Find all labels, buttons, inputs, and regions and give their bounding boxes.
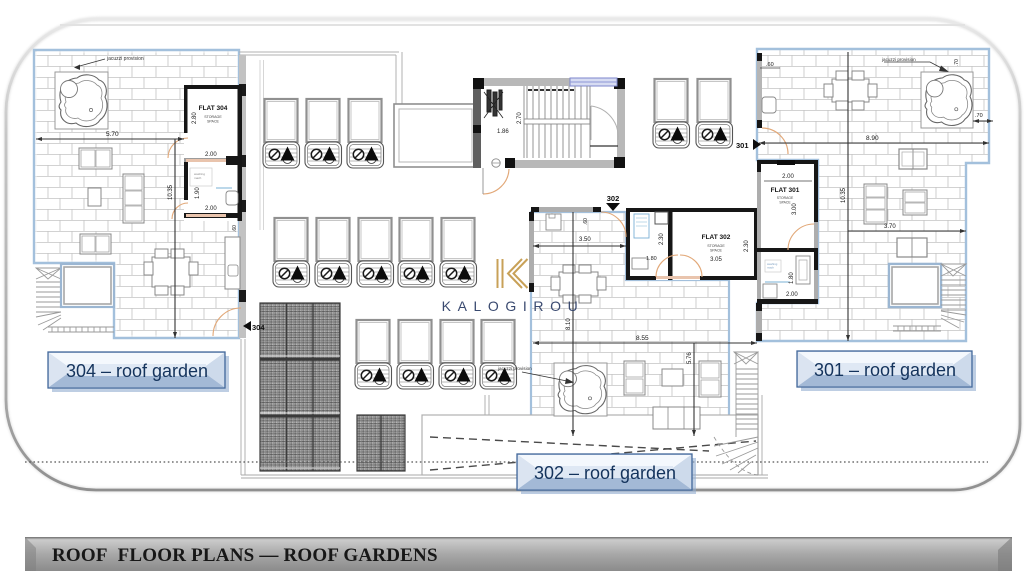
svg-text:2.00: 2.00 xyxy=(786,292,798,298)
svg-text:1.90: 1.90 xyxy=(195,187,201,199)
svg-text:8.90: 8.90 xyxy=(866,135,879,142)
svg-text:1.80: 1.80 xyxy=(646,256,657,262)
svg-text:10.35: 10.35 xyxy=(168,184,174,200)
svg-text:1.80: 1.80 xyxy=(789,272,795,284)
svg-text:jacuzzi provision: jacuzzi provision xyxy=(497,366,532,371)
svg-text:FLAT 304: FLAT 304 xyxy=(199,105,228,112)
svg-text:5.76: 5.76 xyxy=(687,352,693,364)
svg-text:KALOGIROU: KALOGIROU xyxy=(442,298,585,314)
svg-text:STORAGE: STORAGE xyxy=(204,115,222,119)
svg-text:3.70: 3.70 xyxy=(884,224,896,230)
svg-text:SPACE: SPACE xyxy=(207,120,220,124)
svg-text:jacuzzi provision: jacuzzi provision xyxy=(881,57,916,62)
svg-text:2.00: 2.00 xyxy=(782,174,794,180)
svg-text:.60: .60 xyxy=(583,218,589,225)
svg-text:SPACE: SPACE xyxy=(710,249,723,253)
svg-text:STORAGE: STORAGE xyxy=(707,244,725,248)
svg-text:3.05: 3.05 xyxy=(710,257,722,263)
svg-text:mach: mach xyxy=(767,266,774,270)
svg-text:8.10: 8.10 xyxy=(566,318,572,330)
svg-text:301: 301 xyxy=(736,141,749,150)
svg-text:3.50: 3.50 xyxy=(579,237,591,243)
svg-text:2.30: 2.30 xyxy=(659,233,665,245)
svg-text:301 – roof garden: 301 – roof garden xyxy=(814,360,956,380)
svg-text:FLAT 302: FLAT 302 xyxy=(702,234,731,241)
svg-text:8.55: 8.55 xyxy=(636,335,649,342)
svg-text:304 – roof garden: 304 – roof garden xyxy=(66,361,208,381)
svg-text:5.70: 5.70 xyxy=(106,131,119,138)
svg-text:10.35: 10.35 xyxy=(841,187,847,203)
svg-text:304: 304 xyxy=(252,323,265,332)
svg-text:.70: .70 xyxy=(954,59,960,66)
svg-text:FLAT 301: FLAT 301 xyxy=(771,187,800,194)
svg-text:2.30: 2.30 xyxy=(744,240,750,252)
svg-text:302: 302 xyxy=(607,194,620,203)
svg-text:1.86: 1.86 xyxy=(497,129,509,135)
svg-text:2.00: 2.00 xyxy=(205,152,217,158)
svg-text:mach: mach xyxy=(194,176,202,180)
svg-text:.60: .60 xyxy=(766,62,774,68)
svg-text:SPACE: SPACE xyxy=(779,201,791,205)
svg-text:2.80: 2.80 xyxy=(192,112,198,124)
svg-text:jacuzzi provision: jacuzzi provision xyxy=(106,56,144,62)
svg-text:STORAGE: STORAGE xyxy=(777,196,794,200)
svg-text:.60: .60 xyxy=(232,225,238,232)
svg-text:.70: .70 xyxy=(975,113,983,119)
svg-text:302 – roof garden: 302 – roof garden xyxy=(534,463,676,483)
svg-text:2.70: 2.70 xyxy=(517,112,523,124)
svg-text:3.00: 3.00 xyxy=(792,203,798,215)
svg-text:2.00: 2.00 xyxy=(205,206,217,212)
svg-text:ROOF FLOOR PLANS — ROOF GARDE: ROOF FLOOR PLANS — ROOF GARDENS xyxy=(52,545,438,566)
